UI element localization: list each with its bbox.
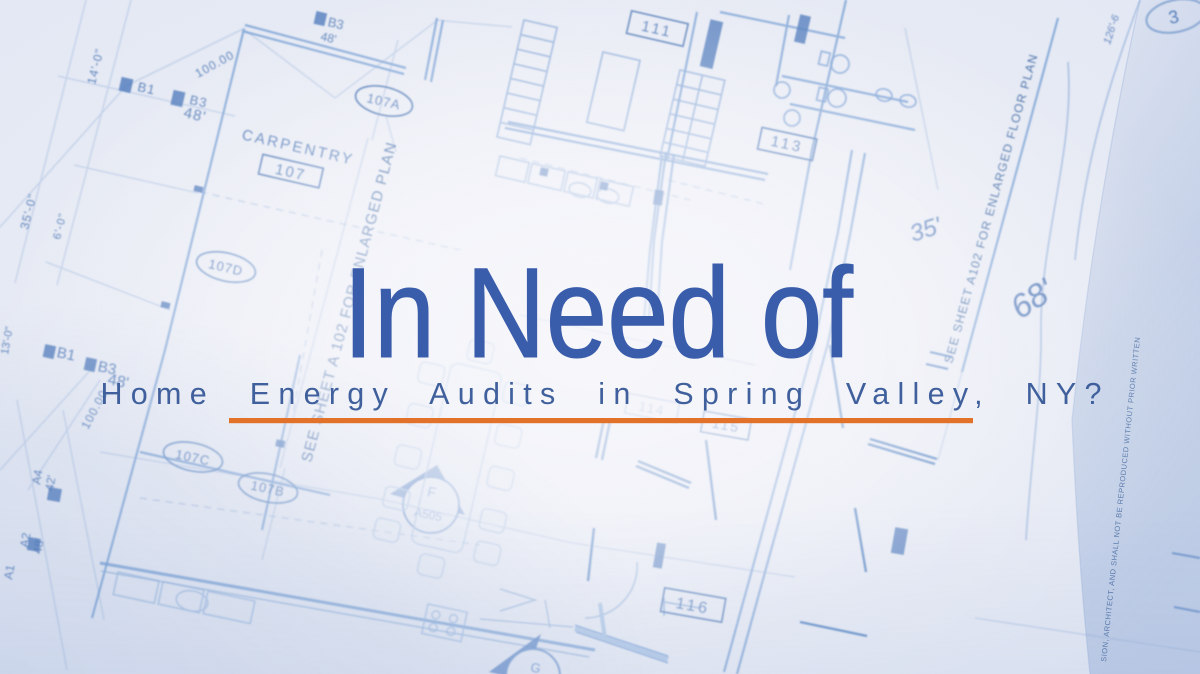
svg-text:Home Energy Audits in Spring V: Home Energy Audits in Spring Valley, NY? — [101, 377, 1112, 411]
svg-text:In Need of: In Need of — [343, 242, 853, 385]
